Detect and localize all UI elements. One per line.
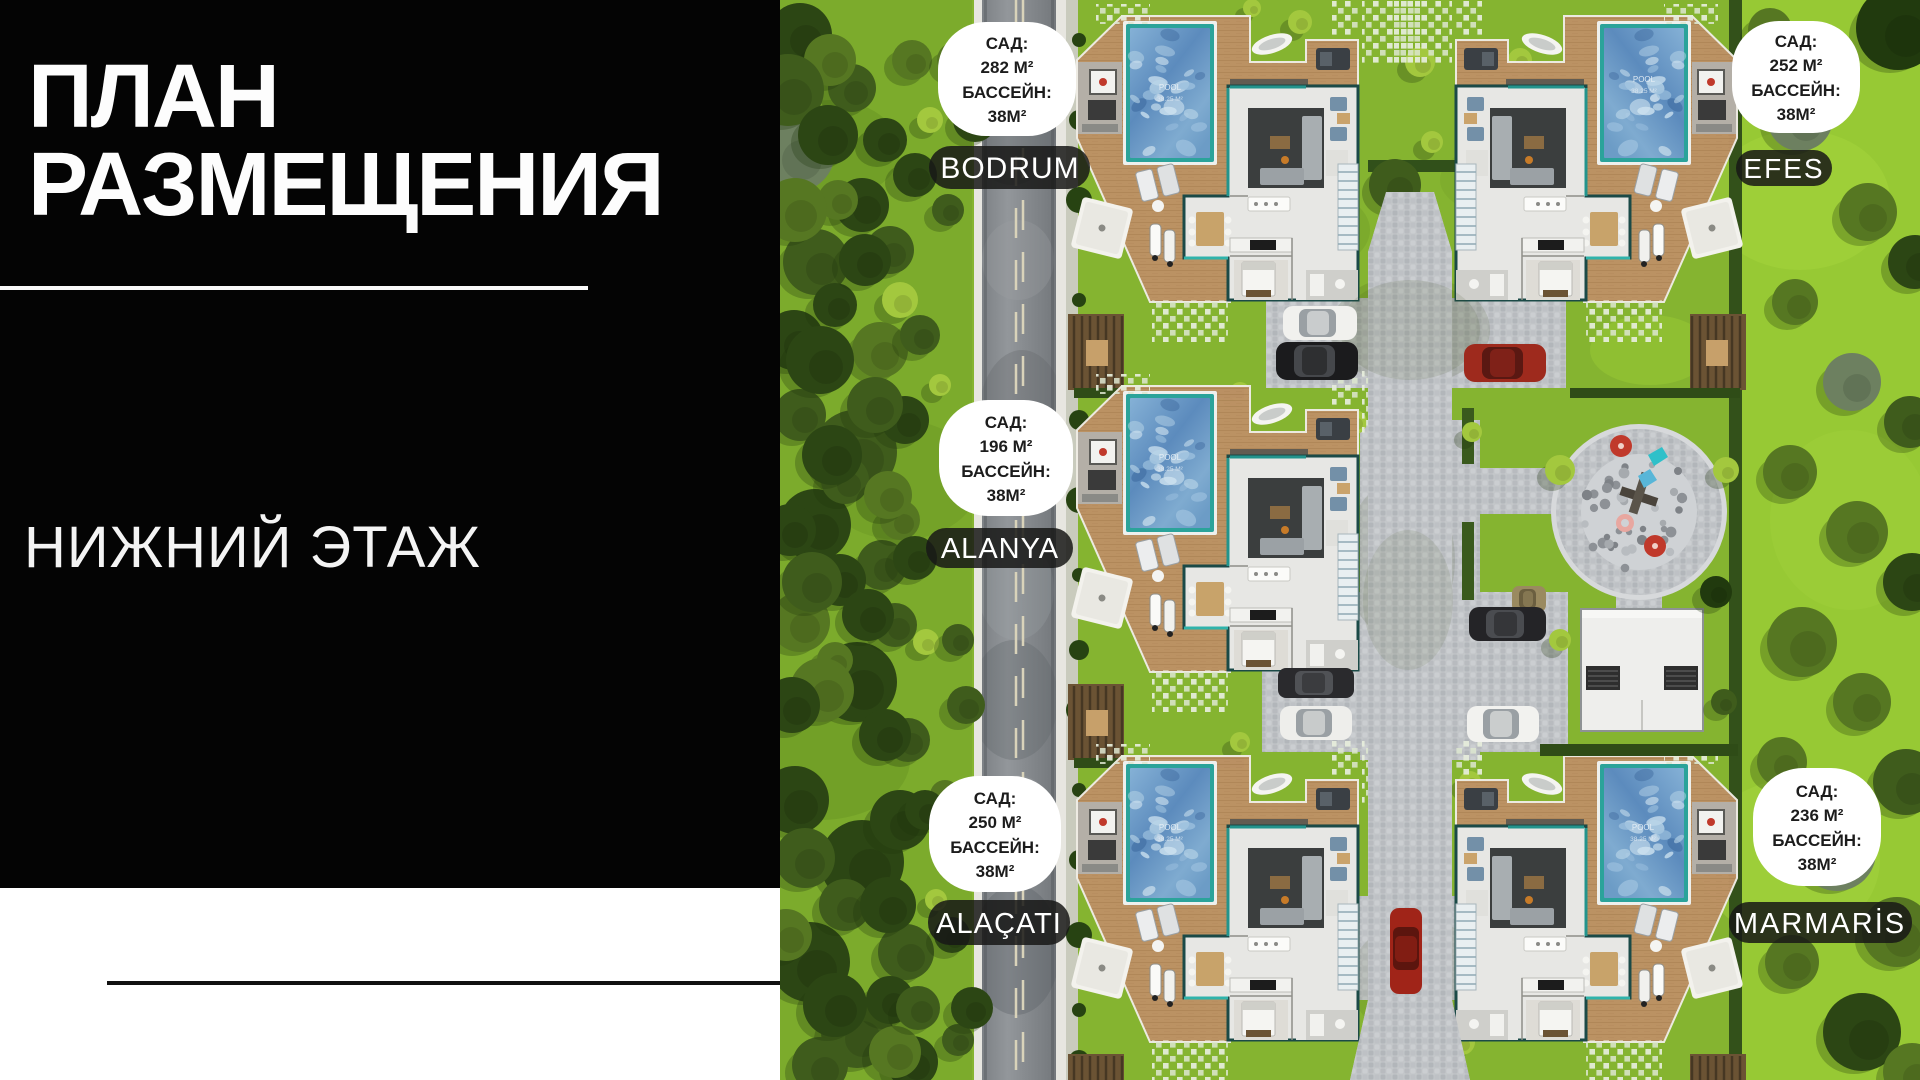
svg-text:38.25 M²: 38.25 M² <box>1157 836 1183 843</box>
svg-text:POOL: POOL <box>1159 83 1182 92</box>
svg-text:38М²: 38М² <box>1777 105 1816 124</box>
svg-text:POOL: POOL <box>1633 75 1656 84</box>
svg-text:EFES: EFES <box>1743 153 1824 184</box>
svg-text:250 М²: 250 М² <box>969 813 1022 832</box>
svg-text:38М²: 38М² <box>976 862 1015 881</box>
svg-text:38.25 M²: 38.25 M² <box>1631 88 1657 95</box>
svg-text:САД:: САД: <box>1775 32 1818 51</box>
svg-text:196 М²: 196 М² <box>980 437 1033 456</box>
svg-text:САД:: САД: <box>986 34 1029 53</box>
svg-text:БАССЕЙН:: БАССЕЙН: <box>1751 81 1840 100</box>
svg-text:САД:: САД: <box>1796 782 1839 801</box>
svg-text:POOL: POOL <box>1632 823 1655 832</box>
svg-text:БАССЕЙН:: БАССЕЙН: <box>962 83 1051 102</box>
svg-text:БАССЕЙН:: БАССЕЙН: <box>961 462 1050 481</box>
svg-text:БАССЕЙН:: БАССЕЙН: <box>950 838 1039 857</box>
svg-text:POOL: POOL <box>1159 453 1182 462</box>
svg-text:38.25 M²: 38.25 M² <box>1630 836 1656 843</box>
svg-text:POOL: POOL <box>1159 823 1182 832</box>
svg-text:MARMARİS: MARMARİS <box>1734 907 1906 940</box>
svg-text:BODRUM: BODRUM <box>940 152 1079 185</box>
svg-text:БАССЕЙН:: БАССЕЙН: <box>1772 831 1861 850</box>
svg-text:38М²: 38М² <box>988 107 1027 126</box>
svg-text:38М²: 38М² <box>987 486 1026 505</box>
svg-text:САД:: САД: <box>974 789 1017 808</box>
svg-text:38.25 M²: 38.25 M² <box>1157 466 1183 473</box>
svg-text:252 М²: 252 М² <box>1770 56 1823 75</box>
svg-text:ALAÇATI: ALAÇATI <box>936 908 1062 940</box>
svg-text:282 М²: 282 М² <box>981 58 1034 77</box>
svg-text:38М²: 38М² <box>1798 855 1837 874</box>
svg-text:САД:: САД: <box>985 413 1028 432</box>
svg-text:236 М²: 236 М² <box>1791 806 1844 825</box>
svg-text:38.25 M²: 38.25 M² <box>1157 96 1183 103</box>
svg-text:ALANYA: ALANYA <box>941 533 1059 565</box>
